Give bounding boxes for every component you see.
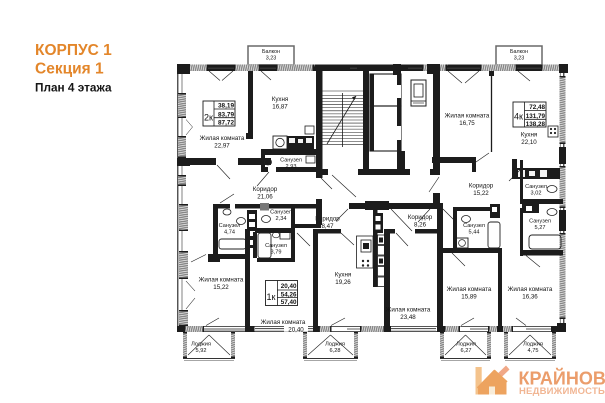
svg-text:Кухня: Кухня	[335, 272, 352, 279]
svg-text:Жилая комната: Жилая комната	[386, 307, 431, 314]
svg-text:131,79: 131,79	[526, 113, 546, 120]
svg-text:87,72: 87,72	[218, 120, 234, 127]
svg-text:Санузел: Санузел	[525, 184, 547, 190]
svg-text:Жилая комната: Жилая комната	[508, 286, 553, 293]
svg-text:КОРПУС 1: КОРПУС 1	[35, 42, 112, 59]
svg-text:20,40: 20,40	[288, 326, 304, 333]
svg-text:Санузел: Санузел	[280, 158, 302, 164]
svg-text:Коридор: Коридор	[408, 214, 433, 221]
svg-text:23,48: 23,48	[400, 314, 416, 321]
svg-text:3,02: 3,02	[531, 191, 542, 197]
svg-text:83,79: 83,79	[218, 111, 234, 118]
svg-text:Санузел: Санузел	[219, 223, 241, 229]
svg-text:Санузел: Санузел	[529, 219, 551, 225]
svg-text:21,06: 21,06	[257, 194, 273, 201]
svg-text:72,48: 72,48	[529, 104, 545, 111]
svg-text:Жилая комната: Жилая комната	[200, 135, 245, 142]
svg-text:Коридор: Коридор	[253, 186, 278, 193]
svg-text:Жилая комната: Жилая комната	[261, 319, 306, 326]
svg-text:2,34: 2,34	[276, 216, 287, 222]
svg-text:5,44: 5,44	[469, 230, 480, 236]
svg-text:2к: 2к	[204, 113, 213, 123]
svg-text:4к: 4к	[514, 112, 523, 122]
svg-text:15,22: 15,22	[473, 190, 489, 197]
svg-text:Лоджия: Лоджия	[325, 342, 345, 348]
svg-text:15,89: 15,89	[461, 294, 477, 301]
svg-text:5,27: 5,27	[535, 225, 546, 231]
svg-text:16,75: 16,75	[459, 120, 475, 127]
svg-text:Санузел: Санузел	[265, 243, 287, 249]
svg-text:Санузел: Санузел	[270, 210, 292, 216]
svg-text:Секция 1: Секция 1	[35, 61, 104, 78]
svg-text:16,87: 16,87	[272, 104, 288, 111]
svg-text:19,26: 19,26	[335, 279, 351, 286]
svg-text:2,93: 2,93	[286, 164, 297, 170]
svg-text:38,19: 38,19	[218, 102, 234, 109]
svg-text:3,23: 3,23	[266, 56, 277, 62]
svg-text:20,40: 20,40	[281, 283, 297, 290]
svg-text:57,40: 57,40	[281, 299, 297, 306]
svg-text:138,28: 138,28	[526, 121, 546, 128]
svg-text:Жилая комната: Жилая комната	[445, 113, 490, 120]
svg-text:4,75: 4,75	[528, 348, 539, 354]
svg-text:Жилая комната: Жилая комната	[199, 277, 244, 284]
svg-text:НЕДВИЖИМОСТЬ: НЕДВИЖИМОСТЬ	[519, 386, 605, 397]
svg-text:Санузел: Санузел	[463, 223, 485, 229]
svg-text:План 4 этажа: План 4 этажа	[35, 81, 112, 95]
svg-text:8,26: 8,26	[414, 222, 427, 229]
svg-text:Кухня: Кухня	[272, 96, 289, 103]
svg-text:Балкон: Балкон	[510, 49, 528, 55]
svg-text:5,92: 5,92	[196, 348, 207, 354]
svg-text:6,27: 6,27	[461, 348, 472, 354]
svg-text:54,26: 54,26	[281, 291, 297, 298]
svg-text:3,79: 3,79	[271, 250, 282, 256]
svg-text:Жилая комната: Жилая комната	[447, 286, 492, 293]
svg-text:16,36: 16,36	[522, 294, 538, 301]
svg-text:Коридор: Коридор	[469, 183, 494, 190]
svg-text:Кухня: Кухня	[521, 132, 538, 139]
svg-text:4,74: 4,74	[224, 230, 235, 236]
svg-text:Балкон: Балкон	[262, 49, 280, 55]
svg-text:15,22: 15,22	[213, 284, 229, 291]
svg-text:3,23: 3,23	[514, 56, 525, 62]
svg-text:6,28: 6,28	[330, 348, 341, 354]
svg-text:22,97: 22,97	[214, 143, 230, 150]
svg-text:8,47: 8,47	[321, 223, 334, 230]
svg-text:22,10: 22,10	[521, 139, 537, 146]
svg-text:1к: 1к	[267, 292, 276, 302]
